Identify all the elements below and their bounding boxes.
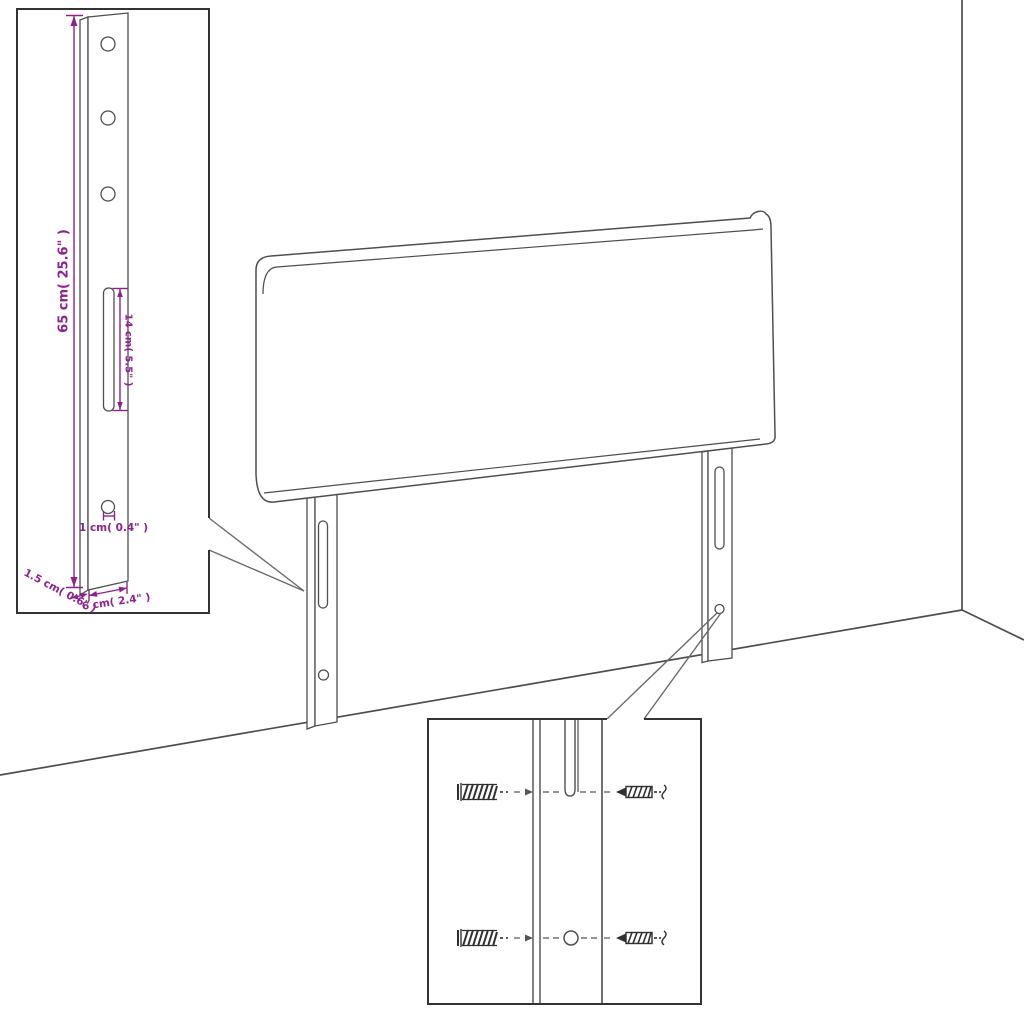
magnified-hole xyxy=(564,931,578,945)
left-leg-side-face xyxy=(307,497,315,729)
right-leg-hole xyxy=(715,605,724,614)
bracket-side-face xyxy=(80,17,88,595)
right-leg-side-face xyxy=(702,451,708,663)
right-leg-slot xyxy=(715,467,724,549)
bracket-hole-3 xyxy=(101,187,115,201)
bracket-hole-2 xyxy=(101,111,115,125)
left-leg-hole xyxy=(319,670,329,680)
left-leg xyxy=(307,494,337,729)
hole-diameter-label: 1 cm( 0.4" ) xyxy=(79,522,148,534)
screw-detail-inset xyxy=(428,719,701,1004)
diagram-page: 65 cm( 25.6" ) 14 cm( 5.5" ) 1 cm( 0.4" … xyxy=(0,0,1024,1024)
slot-length-label: 14 cm( 5.5" ) xyxy=(123,314,134,387)
bracket-detail-inset: 65 cm( 25.6" ) 14 cm( 5.5" ) 1 cm( 0.4" … xyxy=(17,9,209,615)
height-label: 65 cm( 25.6" ) xyxy=(57,229,72,333)
headboard-dimension-diagram: 65 cm( 25.6" ) 14 cm( 5.5" ) 1 cm( 0.4" … xyxy=(0,0,1024,1024)
bracket-slot xyxy=(104,288,115,411)
left-leg-slot xyxy=(319,521,328,608)
right-leg xyxy=(702,448,732,663)
bracket-hole-1 xyxy=(101,37,115,51)
